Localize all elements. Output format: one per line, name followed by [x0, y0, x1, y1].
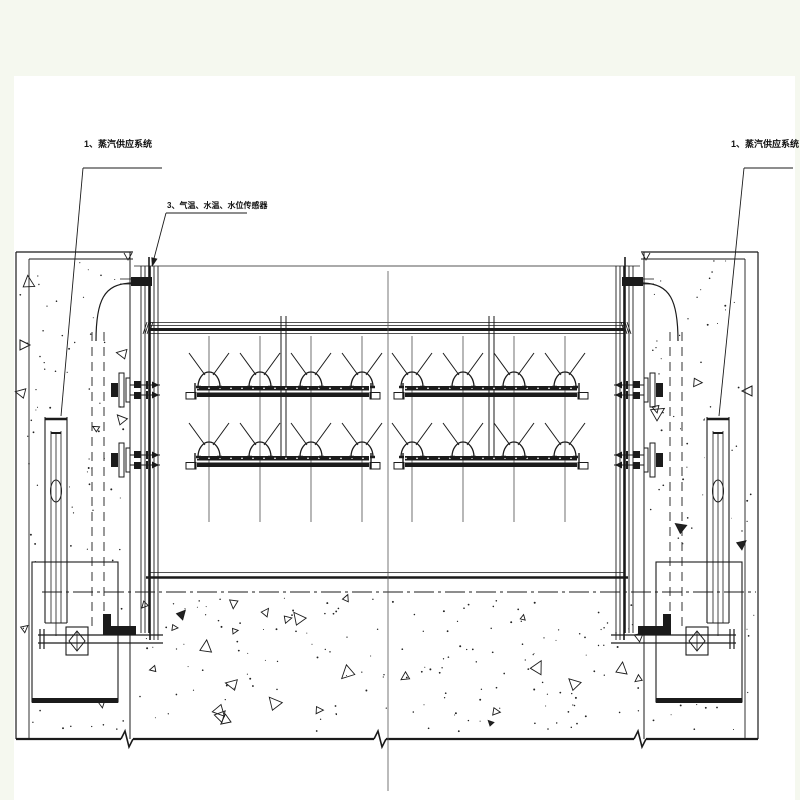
label-steam-supply-right: 1、蒸汽供应系统 [731, 138, 799, 149]
label-sensors: 3、气温、水温、水位传感器 [167, 200, 268, 210]
engineering-section-drawing: 1、蒸汽供应系统 3、气温、水温、水位传感器 1、蒸汽供应系统 [0, 0, 800, 800]
drawing-canvas: 1、蒸汽供应系统 3、气温、水温、水位传感器 1、蒸汽供应系统 [0, 0, 800, 800]
label-steam-supply-left: 1、蒸汽供应系统 [84, 138, 152, 149]
